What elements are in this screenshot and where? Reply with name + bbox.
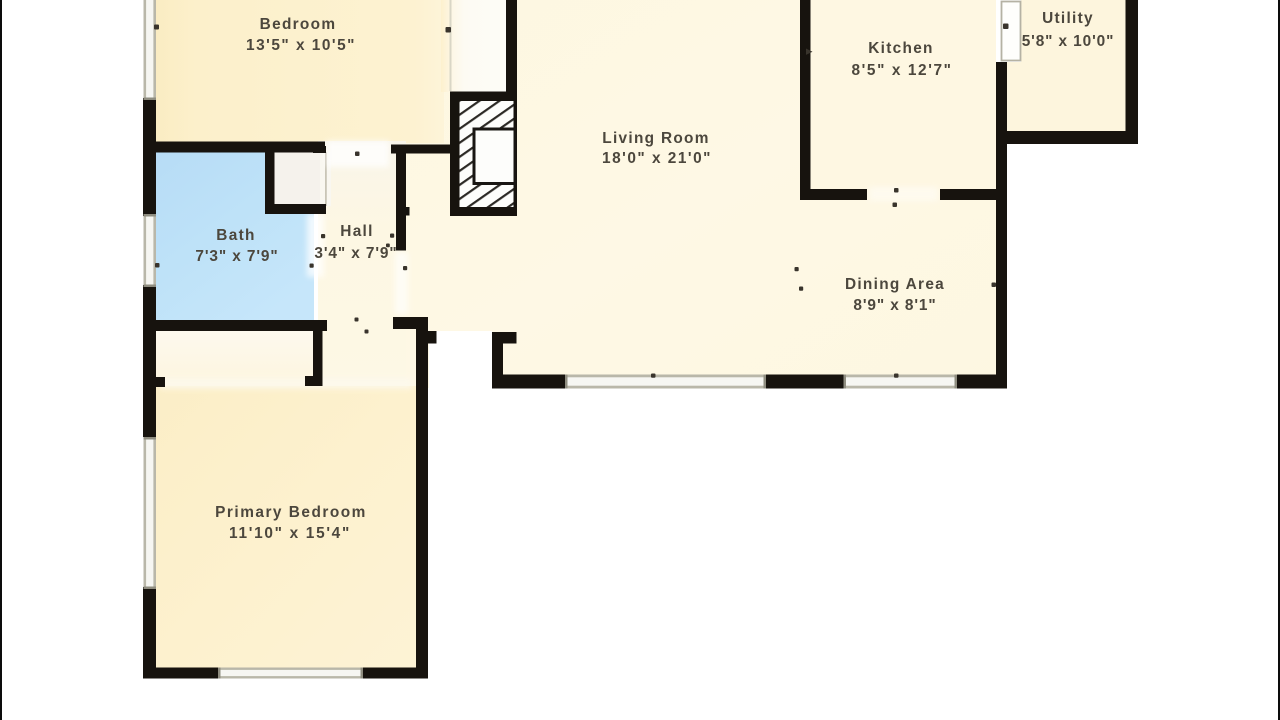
svg-text:7'3" x 7'9": 7'3" x 7'9" xyxy=(195,248,278,265)
svg-text:Bedroom: Bedroom xyxy=(260,16,337,33)
svg-text:Living Room: Living Room xyxy=(602,130,710,147)
svg-text:Kitchen: Kitchen xyxy=(868,40,934,57)
svg-text:5'8" x 10'0": 5'8" x 10'0" xyxy=(1022,33,1115,50)
svg-text:8'9" x 8'1": 8'9" x 8'1" xyxy=(853,297,936,314)
svg-text:3'4" x 7'9": 3'4" x 7'9" xyxy=(314,245,397,262)
svg-text:Utility: Utility xyxy=(1042,10,1094,27)
svg-text:Primary Bedroom: Primary Bedroom xyxy=(215,504,367,521)
svg-text:8'5" x 12'7": 8'5" x 12'7" xyxy=(851,62,952,79)
svg-text:Dining Area: Dining Area xyxy=(845,276,945,293)
svg-text:11'10" x 15'4": 11'10" x 15'4" xyxy=(229,525,351,542)
svg-text:Bath: Bath xyxy=(216,227,255,244)
svg-text:13'5" x 10'5": 13'5" x 10'5" xyxy=(246,37,356,54)
svg-text:18'0" x 21'0": 18'0" x 21'0" xyxy=(602,150,712,167)
svg-text:Hall: Hall xyxy=(340,223,373,240)
